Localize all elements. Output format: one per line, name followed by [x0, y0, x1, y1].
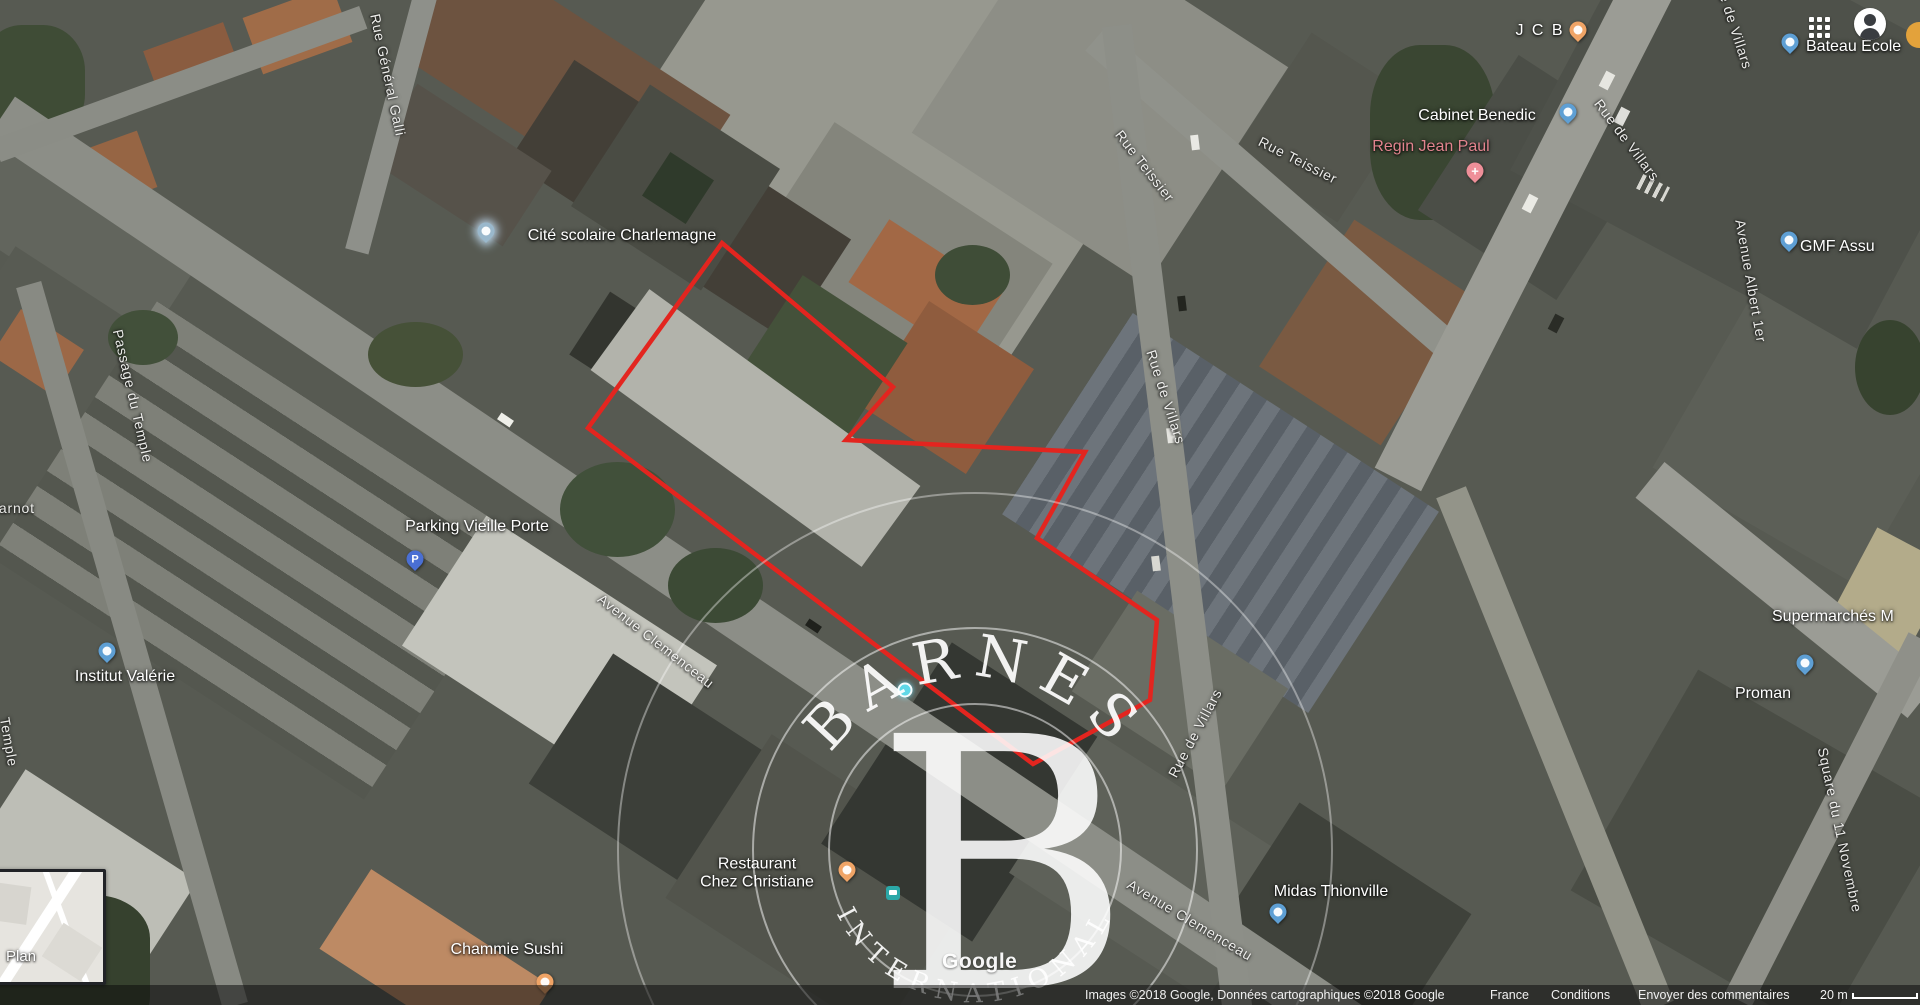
street-label-temple: Temple	[0, 716, 21, 768]
street-label-rue-general-galli: Rue Général Galli	[367, 12, 409, 137]
poi-label-cabinet-benedic[interactable]: Cabinet Benedic	[1418, 107, 1535, 125]
poi-label-institut-valerie[interactable]: Institut Valérie	[75, 668, 175, 686]
poi-label-line2: Chez Christiane	[700, 874, 814, 892]
attribution-bar: Images ©2018 Google, Données cartographi…	[0, 985, 1920, 1005]
minimap-plan-label: Plan	[6, 948, 36, 965]
terms-link[interactable]: Conditions	[1551, 988, 1610, 1002]
poi-label-midas-thionville[interactable]: Midas Thionville	[1274, 883, 1388, 901]
minimap-plan-toggle[interactable]: Plan	[0, 869, 106, 985]
restaurant-pin-icon-chez-christiane[interactable]	[835, 858, 859, 882]
poi-label-restaurant-chez-christiane[interactable]: Restaurant Chez Christiane	[700, 856, 814, 893]
school-pin-icon-cite-scolaire[interactable]	[474, 219, 498, 243]
poi-label-chammie-sushi[interactable]: Chammie Sushi	[451, 941, 564, 959]
minimap-block	[42, 923, 102, 982]
street-label-rue-teissier-2: Rue Teissier	[1256, 133, 1340, 186]
attribution-credits: Images ©2018 Google, Données cartographi…	[1085, 988, 1445, 1002]
attribution-region: France	[1490, 988, 1529, 1002]
scale-bar	[1852, 997, 1918, 999]
street-label-rue-de-villars-3: Rue de Villars	[1143, 348, 1189, 446]
poi-label-regin-jean-paul[interactable]: Regin Jean Paul	[1372, 138, 1489, 156]
scale-label: 20 m	[1820, 988, 1848, 1002]
street-label-rue-de-villars-2: Rue de Villars	[1591, 96, 1663, 184]
street-label-rue-de-villars-4: Rue de Villars	[1165, 686, 1225, 780]
poi-label-cite-scolaire-charlemagne[interactable]: Cité scolaire Charlemagne	[528, 227, 717, 245]
google-logo: Google	[942, 950, 1017, 974]
street-label-avenue-albert-1er: Avenue Albert 1er	[1732, 218, 1769, 344]
poi-label-gmf[interactable]: GMF Assu	[1800, 238, 1875, 256]
transit-stop-icon[interactable]	[898, 683, 913, 698]
place-pin-icon-gmf[interactable]	[1777, 228, 1801, 252]
street-label-avenue-clemenceau-1: Avenue Clemenceau	[595, 591, 718, 692]
street-label-rue-de-villars-1: Rue de Villars	[1710, 0, 1756, 71]
street-label-passage-du-temple: Passage du Temple	[110, 328, 156, 464]
poi-label-jcb[interactable]: J C B	[1515, 22, 1564, 40]
account-avatar-icon[interactable]	[1854, 8, 1886, 40]
street-label-carnot: Carnot	[0, 500, 35, 516]
feedback-link[interactable]: Envoyer des commentaires	[1638, 988, 1789, 1002]
poi-label-supermarches[interactable]: Supermarchés M	[1772, 608, 1894, 626]
place-pin-icon-proman[interactable]	[1793, 651, 1817, 675]
restaurant-pin-icon-jcb[interactable]	[1566, 18, 1590, 42]
satellite-map-canvas[interactable]: Rue Général Galli Passage du Temple Carn…	[0, 0, 1920, 1005]
parking-pin-icon-vieille-porte[interactable]	[403, 547, 427, 571]
bus-stop-icon[interactable]	[886, 886, 900, 900]
street-label-rue-teissier-1: Rue Teissier	[1112, 127, 1178, 205]
poi-label-parking-vieille-porte[interactable]: Parking Vieille Porte	[405, 518, 549, 536]
place-pin-icon-bateau-ecole[interactable]	[1778, 30, 1802, 54]
poi-label-proman[interactable]: Proman	[1735, 685, 1791, 703]
place-pin-icon-institut-valerie[interactable]	[95, 639, 119, 663]
street-label-square-du-11-novembre: Square du 11 Novembre	[1815, 746, 1866, 914]
minimap-block	[0, 881, 31, 925]
poi-label-bateau-ec[interactable]: Bateau Ecole	[1806, 38, 1901, 56]
health-pin-icon-regin-jean-paul[interactable]	[1463, 159, 1487, 183]
street-label-avenue-clemenceau-2: Avenue Clemenceau	[1124, 876, 1255, 964]
place-pin-icon-cabinet-benedic[interactable]	[1556, 100, 1580, 124]
apps-grid-icon[interactable]	[1808, 16, 1832, 40]
place-pin-icon-midas[interactable]	[1266, 900, 1290, 924]
poi-label-line1: Restaurant	[700, 856, 814, 874]
map-labels-layer: Rue Général Galli Passage du Temple Carn…	[0, 0, 1920, 1005]
